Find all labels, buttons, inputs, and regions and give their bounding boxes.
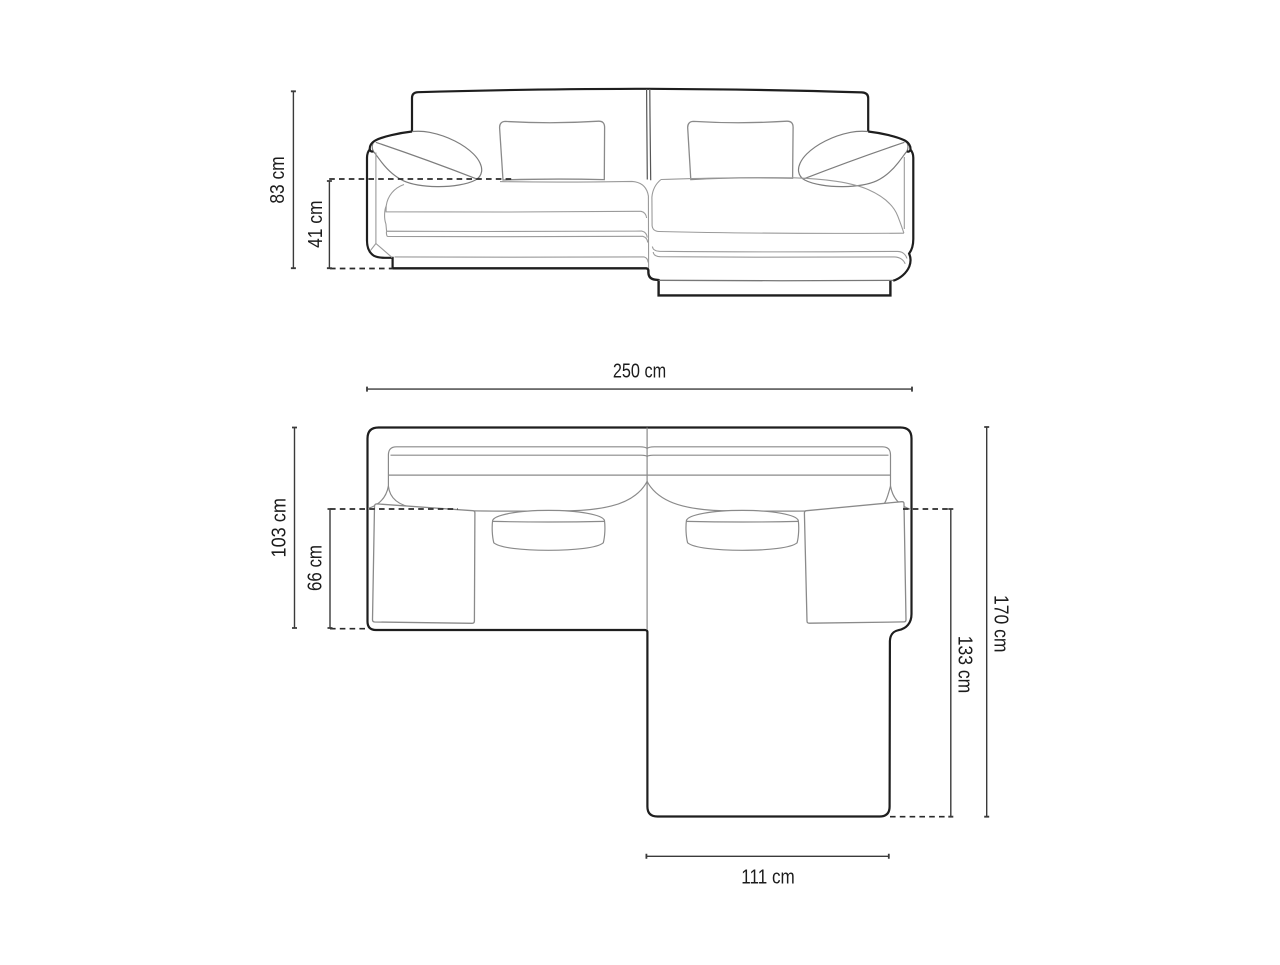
- svg-text:103 cm: 103 cm: [267, 498, 290, 557]
- svg-text:66 cm: 66 cm: [303, 545, 326, 591]
- svg-text:83 cm: 83 cm: [266, 156, 289, 203]
- svg-text:170 cm: 170 cm: [990, 595, 1013, 653]
- svg-text:133 cm: 133 cm: [954, 636, 977, 694]
- svg-text:41 cm: 41 cm: [304, 201, 327, 248]
- svg-text:250 cm: 250 cm: [613, 359, 666, 382]
- svg-text:111 cm: 111 cm: [741, 865, 795, 888]
